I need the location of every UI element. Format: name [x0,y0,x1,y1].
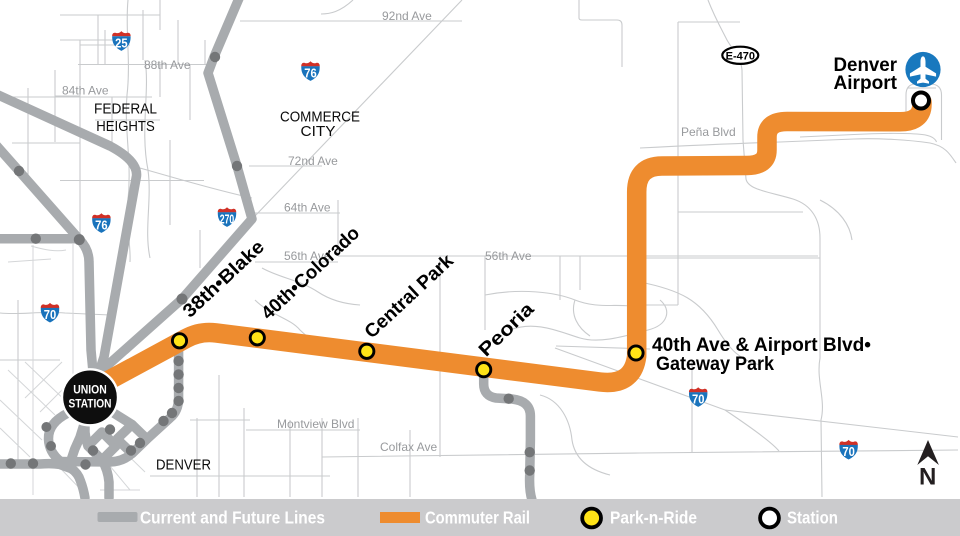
svg-text:Station: Station [787,508,838,528]
svg-text:92nd Ave: 92nd Ave [382,9,432,23]
svg-text:UNION: UNION [73,384,107,396]
svg-text:E-470: E-470 [726,51,755,63]
svg-text:84th Ave: 84th Ave [62,84,109,98]
svg-text:Current and Future Lines: Current and Future Lines [140,508,325,528]
svg-text:Montview Blvd: Montview Blvd [277,417,354,431]
svg-text:64th Ave: 64th Ave [284,201,331,215]
svg-text:Airport: Airport [834,73,898,94]
svg-text:25: 25 [115,36,128,51]
svg-text:56th Ave: 56th Ave [485,249,532,263]
svg-text:72nd Ave: 72nd Ave [288,154,338,168]
svg-text:Colfax Ave: Colfax Ave [380,440,437,454]
svg-text:76: 76 [304,66,317,81]
svg-text:76: 76 [95,218,108,233]
svg-text:STATION: STATION [69,398,112,410]
svg-text:CITY: CITY [301,124,336,140]
svg-text:FEDERAL: FEDERAL [94,102,157,118]
svg-text:DENVER: DENVER [156,458,211,474]
svg-text:Commuter Rail: Commuter Rail [425,508,530,528]
svg-text:70: 70 [842,444,855,459]
svg-text:88th Ave: 88th Ave [144,58,191,72]
svg-text:70: 70 [692,392,705,407]
svg-text:HEIGHTS: HEIGHTS [96,119,155,135]
svg-text:40th Ave & Airport Blvd•: 40th Ave & Airport Blvd• [652,335,871,356]
svg-text:Park-n-Ride: Park-n-Ride [610,508,697,528]
svg-text:N: N [919,464,936,491]
svg-text:Peña Blvd: Peña Blvd [681,125,736,139]
svg-text:Gateway Park: Gateway Park [656,354,774,375]
svg-text:270: 270 [220,212,235,227]
svg-text:70: 70 [44,307,57,322]
